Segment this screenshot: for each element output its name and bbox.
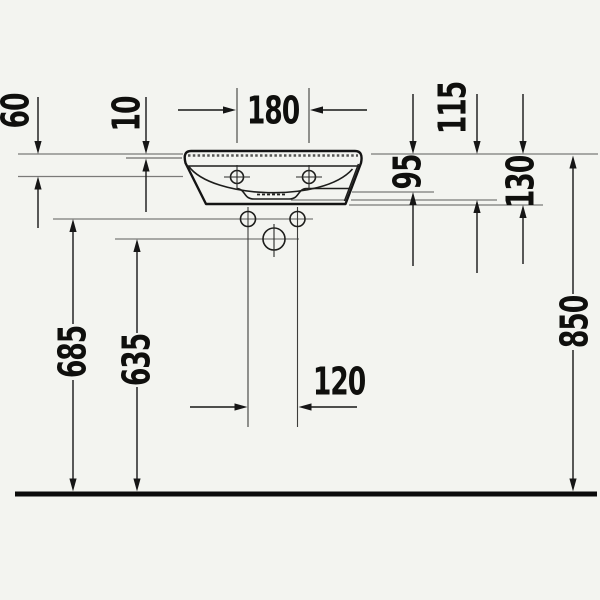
arrow-up-icon (133, 239, 140, 252)
dim-label-130: 130 (499, 155, 543, 208)
arrow-up-icon (34, 177, 41, 190)
dim-label-120: 120 (313, 360, 366, 404)
arrow-down-icon (34, 141, 41, 154)
dimension-130: 130 (499, 94, 543, 264)
arrow-up-icon (69, 219, 76, 232)
dim-label-95: 95 (386, 155, 430, 190)
drawing-canvas: 60 10 180 95 115 (0, 0, 600, 600)
mounting-features (241, 212, 306, 258)
dimension-635: 635 (115, 239, 159, 492)
basin (185, 151, 362, 204)
dimension-60: 60 (0, 93, 42, 228)
basin-outline (185, 151, 362, 204)
dim-label-115: 115 (431, 82, 475, 134)
dim-label-850: 850 (553, 295, 597, 348)
floor-line (15, 492, 597, 497)
dim-label-180: 180 (247, 89, 300, 133)
arrow-down-icon (142, 141, 149, 154)
dim-label-685: 685 (51, 326, 95, 378)
arrow-up-icon (473, 200, 480, 213)
arrow-left-icon (310, 106, 323, 113)
arrow-down-icon (569, 479, 576, 492)
arrow-right-icon (235, 403, 248, 410)
dimension-95: 95 (386, 94, 430, 266)
washbasin-dimension-drawing: 60 10 180 95 115 (0, 0, 600, 600)
arrow-up-icon (409, 192, 416, 205)
dimension-850: 850 (553, 156, 597, 492)
dim-label-10: 10 (105, 96, 149, 131)
arrow-down-icon (519, 141, 526, 154)
tap-hole-right (296, 165, 322, 190)
dimension-180: 180 (178, 89, 367, 133)
reference-lines (18, 88, 598, 427)
arrow-left-icon (299, 403, 312, 410)
arrow-down-icon (473, 141, 480, 154)
arrow-up-icon (569, 156, 576, 169)
tap-hole-left (224, 165, 250, 190)
dimension-115: 115 (431, 82, 481, 273)
arrow-down-icon (133, 479, 140, 492)
dim-label-635: 635 (115, 334, 159, 386)
dimensions: 60 10 180 95 115 (0, 82, 597, 492)
dimension-120: 120 (190, 360, 366, 411)
dimension-685: 685 (51, 219, 95, 492)
dim-label-60: 60 (0, 93, 38, 128)
arrow-up-icon (142, 159, 149, 172)
arrow-down-icon (69, 479, 76, 492)
arrow-right-icon (223, 106, 236, 113)
arrow-down-icon (409, 141, 416, 154)
